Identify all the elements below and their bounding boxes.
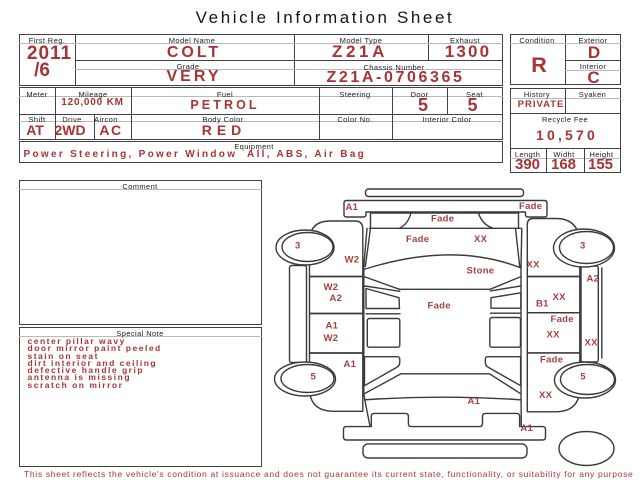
svg-text:B1: B1	[536, 298, 549, 309]
svg-text:Fade: Fade	[551, 314, 574, 325]
svg-text:Fade: Fade	[406, 234, 429, 245]
svg-text:XX: XX	[585, 338, 599, 349]
svg-text:A1: A1	[468, 396, 481, 407]
svg-text:Fade: Fade	[431, 214, 454, 225]
svg-text:Fade: Fade	[428, 301, 451, 312]
svg-text:W2: W2	[324, 282, 339, 293]
svg-text:XX: XX	[553, 292, 567, 303]
svg-text:A2: A2	[587, 273, 600, 284]
svg-text:3: 3	[295, 241, 301, 252]
svg-text:XX: XX	[474, 234, 488, 245]
svg-text:5: 5	[580, 372, 586, 383]
svg-text:W2: W2	[324, 333, 339, 344]
svg-text:XX: XX	[539, 390, 553, 401]
svg-text:A1: A1	[346, 202, 359, 213]
svg-text:A1: A1	[344, 359, 357, 370]
svg-text:Fade: Fade	[519, 201, 542, 212]
svg-text:A1: A1	[326, 320, 339, 331]
svg-text:A1: A1	[520, 423, 533, 434]
svg-text:XX: XX	[547, 330, 561, 341]
svg-text:A2: A2	[330, 293, 343, 304]
svg-text:5: 5	[311, 372, 317, 383]
svg-text:3: 3	[580, 241, 586, 252]
svg-text:Fade: Fade	[540, 355, 563, 366]
svg-text:Stone: Stone	[467, 266, 495, 277]
svg-text:W2: W2	[345, 255, 360, 266]
svg-text:XX: XX	[527, 260, 541, 271]
